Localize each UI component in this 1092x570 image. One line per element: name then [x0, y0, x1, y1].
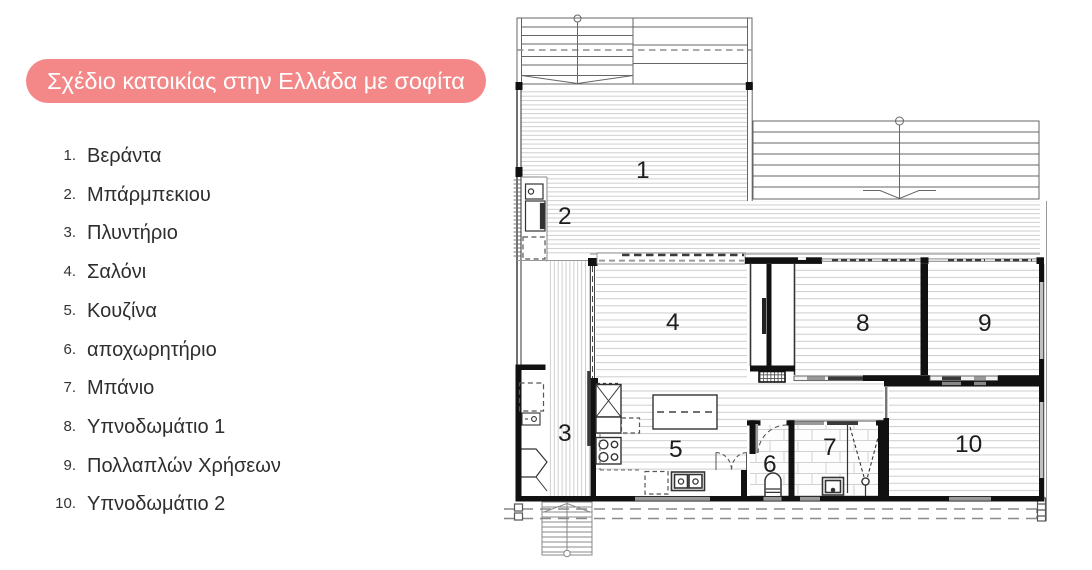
svg-text:4: 4 — [666, 309, 680, 336]
svg-text:2: 2 — [558, 203, 572, 230]
svg-text:10: 10 — [955, 431, 982, 458]
svg-text:7: 7 — [823, 434, 837, 461]
svg-text:8: 8 — [856, 310, 870, 337]
svg-text:9: 9 — [978, 310, 992, 337]
svg-text:3: 3 — [558, 420, 572, 447]
svg-text:1: 1 — [636, 157, 650, 184]
svg-text:5: 5 — [669, 436, 683, 463]
